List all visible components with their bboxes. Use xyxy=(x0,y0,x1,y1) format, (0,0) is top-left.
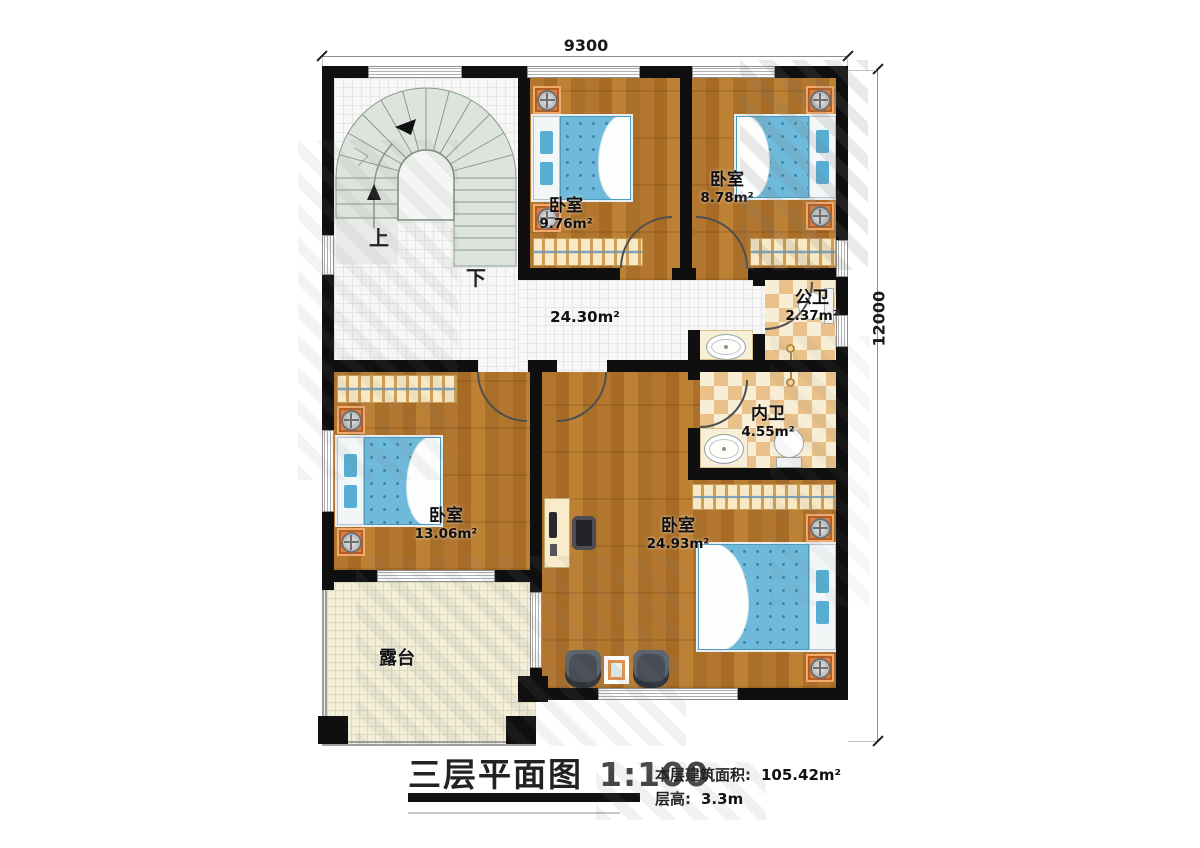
extension-line xyxy=(847,58,848,66)
room-name: 公卫 xyxy=(785,288,838,308)
floor-height-label: 层高: xyxy=(655,790,691,808)
pillow xyxy=(814,568,831,595)
room-area: 24.93m² xyxy=(647,536,710,552)
floor-height-info: 层高:3.3m xyxy=(655,788,743,809)
window xyxy=(530,592,542,668)
wall xyxy=(753,268,765,286)
lamp-icon xyxy=(341,532,362,553)
bed xyxy=(533,116,631,200)
bed-mattress xyxy=(698,544,809,650)
wardrobe xyxy=(692,484,836,510)
room-area: 2.37m² xyxy=(785,308,838,324)
armchair xyxy=(633,650,669,688)
nightstand xyxy=(806,202,834,230)
room-label-hall: 24.30m² xyxy=(550,308,620,326)
wall xyxy=(518,268,620,280)
room-name: 露台 xyxy=(379,648,415,669)
pillow xyxy=(814,599,831,626)
room-name: 卧室 xyxy=(647,516,710,536)
wall xyxy=(688,468,848,480)
floor-area-label: 本层建筑面积: xyxy=(655,766,751,784)
bed-blanket xyxy=(598,116,631,200)
stairs-down-label: 下 xyxy=(466,262,486,291)
floor-plan-canvas: 上 下 卧室 9.76m² 卧室 8.78m² 24.30m² xyxy=(0,0,1200,848)
room-label-bedroom-master: 卧室 24.93m² xyxy=(647,516,710,553)
pillow xyxy=(342,452,359,479)
room-label-terrace: 露台 xyxy=(379,648,415,670)
wall xyxy=(672,268,696,280)
lamp-icon xyxy=(810,518,831,539)
wardrobe xyxy=(750,238,836,266)
lamp-icon xyxy=(341,410,362,431)
room-name: 内卫 xyxy=(741,404,794,424)
wall xyxy=(322,360,478,372)
towel-hook xyxy=(786,378,795,387)
room-label-inner-bath: 内卫 4.55m² xyxy=(741,404,794,441)
lamp-icon xyxy=(537,90,558,111)
title-underline-bar xyxy=(408,793,640,802)
stairs-up-label: 上 xyxy=(369,222,389,251)
window xyxy=(692,66,775,78)
window xyxy=(322,235,334,275)
room-label-bedroom-b: 卧室 8.78m² xyxy=(700,170,753,207)
extension-line xyxy=(848,741,876,742)
plan-title-text: 三层平面图 xyxy=(408,755,583,794)
nightstand xyxy=(806,86,834,114)
pillow xyxy=(342,483,359,510)
wall xyxy=(836,66,848,700)
window xyxy=(598,688,738,700)
floor-area-info: 本层建筑面积:105.42m² xyxy=(655,764,841,785)
room-area: 13.06m² xyxy=(415,526,478,542)
room-name: 卧室 xyxy=(415,506,478,526)
bed-pillows xyxy=(809,544,836,650)
desk-chair xyxy=(572,516,596,550)
window xyxy=(322,430,334,512)
side-table xyxy=(604,656,629,684)
wall xyxy=(318,716,348,744)
floor-height-value: 3.3m xyxy=(701,790,743,808)
room-area: 9.76m² xyxy=(539,216,592,232)
room-label-bedroom-c: 卧室 13.06m² xyxy=(415,506,478,543)
bed-mattress xyxy=(560,116,631,200)
pillow xyxy=(814,128,831,155)
dimension-line-right xyxy=(877,70,878,742)
bed xyxy=(698,544,836,650)
room-name: 卧室 xyxy=(539,196,592,216)
nightstand xyxy=(533,86,561,114)
wall xyxy=(680,66,692,280)
window xyxy=(527,66,640,78)
room-area: 24.30m² xyxy=(550,308,620,326)
nightstand xyxy=(806,514,834,542)
window xyxy=(836,240,848,277)
floor-area-value: 105.42m² xyxy=(761,766,841,784)
pillow xyxy=(538,160,555,187)
wall xyxy=(518,676,548,702)
room-area: 4.55m² xyxy=(741,424,794,440)
pillow xyxy=(814,159,831,186)
dimension-top-label: 9300 xyxy=(558,36,614,55)
terrace-floor xyxy=(322,582,536,746)
extension-line xyxy=(322,58,323,66)
room-name: 卧室 xyxy=(700,170,753,190)
pillow xyxy=(538,129,555,156)
nightstand xyxy=(337,406,365,434)
bed-pillows xyxy=(533,116,560,200)
room-label-bedroom-a: 卧室 9.76m² xyxy=(539,196,592,233)
dimension-tick xyxy=(872,63,883,74)
title-underline-thin xyxy=(408,812,620,814)
room-area: 8.78m² xyxy=(700,190,753,206)
wall xyxy=(607,360,848,372)
bed-pillows xyxy=(809,116,836,198)
lamp-icon xyxy=(810,90,831,111)
towel-hook xyxy=(786,344,795,353)
armchair xyxy=(565,650,601,688)
wall xyxy=(688,330,700,380)
room-label-public-bath: 公卫 2.37m² xyxy=(785,288,838,325)
window xyxy=(368,66,462,78)
spiral-staircase xyxy=(334,78,518,268)
bed-blanket xyxy=(698,544,749,650)
wall xyxy=(518,66,530,280)
wall xyxy=(506,716,536,744)
nightstand xyxy=(337,528,365,556)
dimension-right-label: 12000 xyxy=(870,293,889,347)
lamp-icon xyxy=(810,206,831,227)
desk xyxy=(544,498,570,568)
dimension-line-top xyxy=(322,56,848,57)
wardrobe xyxy=(337,375,457,403)
lamp-icon xyxy=(810,658,831,679)
sink xyxy=(704,434,744,464)
terrace-sliding-door xyxy=(377,570,495,582)
sink xyxy=(706,334,746,360)
extension-line xyxy=(848,70,876,71)
nightstand xyxy=(806,654,834,682)
bed-pillows xyxy=(337,437,364,525)
